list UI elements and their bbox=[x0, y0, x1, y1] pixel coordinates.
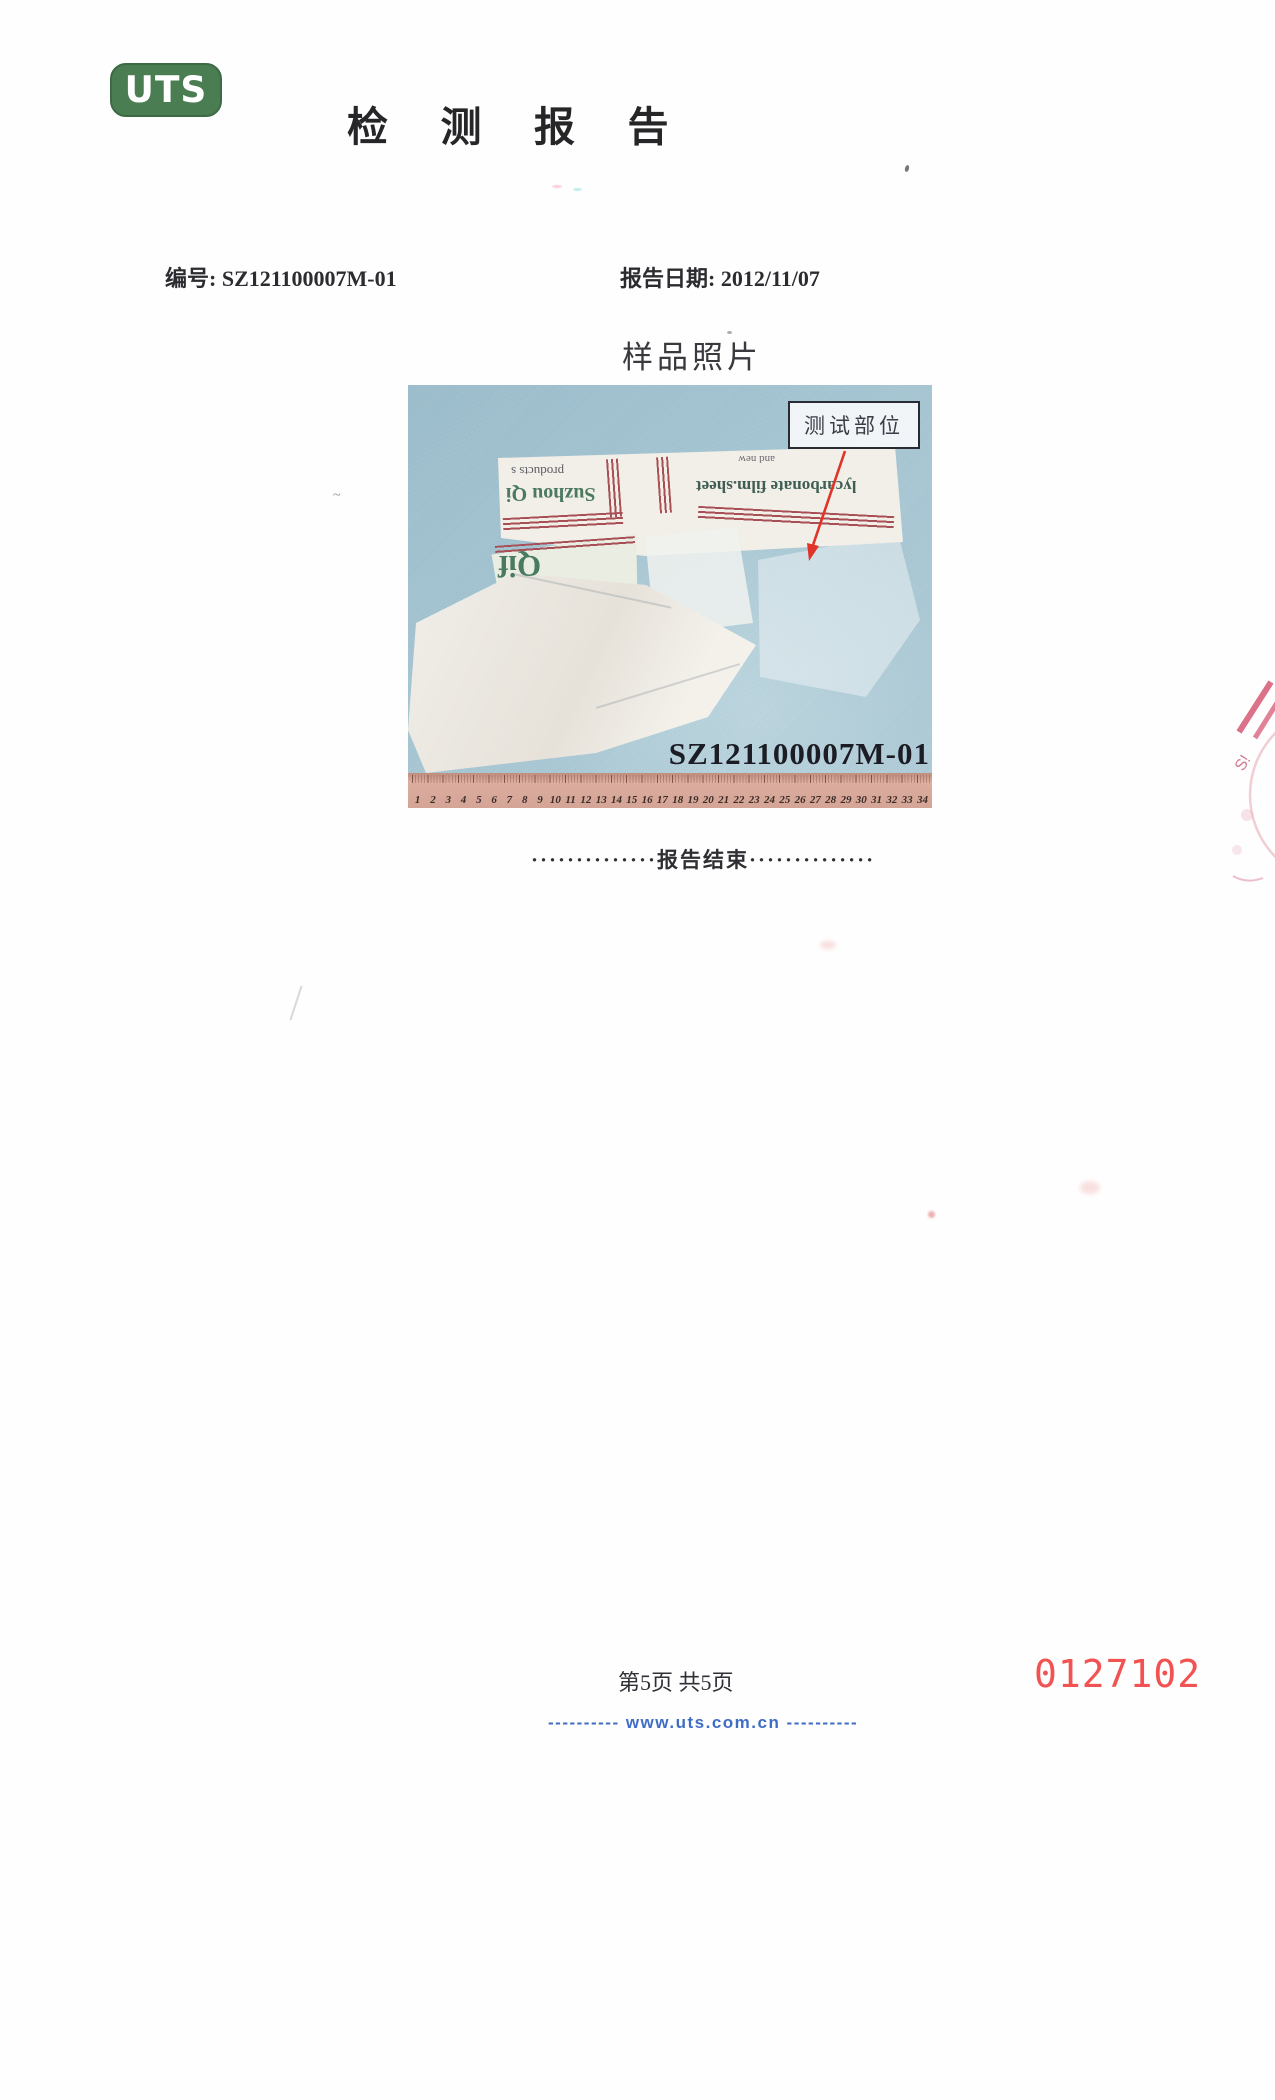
ruler-number: 24 bbox=[762, 794, 777, 806]
scan-scratch bbox=[289, 986, 302, 1021]
report-date-line: 报告日期: 2012/11/07 bbox=[620, 261, 820, 293]
ruler-number: 28 bbox=[823, 794, 838, 806]
ruler-number: 11 bbox=[563, 794, 578, 806]
report-number-label: 编号: bbox=[165, 266, 216, 291]
ruler-number: 17 bbox=[655, 794, 670, 806]
ruler-number: 31 bbox=[869, 794, 884, 806]
ruler-number: 8 bbox=[517, 794, 532, 806]
uts-logo-text: UTS bbox=[125, 69, 208, 111]
scan-mark: ~ bbox=[333, 488, 341, 504]
ruler-number: 29 bbox=[838, 794, 853, 806]
ruler-number: 18 bbox=[670, 794, 685, 806]
sample-id-text: SZ121100007M-01 bbox=[669, 736, 930, 772]
test-location-label: 测试部位 bbox=[804, 410, 904, 440]
report-date-label: 报告日期: bbox=[620, 266, 715, 291]
report-page: UTS 检测报告 编号: SZ121100007M-01 报告日期: 2012/… bbox=[0, 0, 1275, 2100]
ruler-number: 23 bbox=[747, 794, 762, 806]
ruler-number: 12 bbox=[578, 794, 593, 806]
ruler-number: 5 bbox=[471, 794, 486, 806]
ruler-number: 27 bbox=[808, 794, 823, 806]
website-line: ---------- www.uts.com.cn ---------- bbox=[548, 1713, 858, 1733]
stamp-serial-number: 0127102 bbox=[1034, 1652, 1201, 1696]
report-end-marker: ··············报告结束·············· bbox=[531, 844, 875, 874]
report-number-line: 编号: SZ121100007M-01 bbox=[165, 261, 397, 293]
ruler-number: 21 bbox=[716, 794, 731, 806]
ink-smudge bbox=[573, 188, 582, 191]
ruler-number: 6 bbox=[486, 794, 501, 806]
ruler-number: 13 bbox=[594, 794, 609, 806]
ink-smudge bbox=[820, 941, 836, 949]
ruler-numbers: 1234567891011121314151617181920212223242… bbox=[410, 794, 930, 806]
ink-smudge bbox=[552, 185, 562, 188]
ruler-number: 1 bbox=[410, 794, 425, 806]
ruler-number: 9 bbox=[532, 794, 547, 806]
ruler-number: 14 bbox=[609, 794, 624, 806]
ruler-number: 10 bbox=[548, 794, 563, 806]
ruler-ticks bbox=[412, 775, 932, 783]
ink-smudge bbox=[928, 1211, 935, 1218]
ruler-number: 4 bbox=[456, 794, 471, 806]
ruler-number: 16 bbox=[639, 794, 654, 806]
ruler-number: 30 bbox=[854, 794, 869, 806]
ink-smudge bbox=[1080, 1181, 1100, 1194]
scan-speck bbox=[904, 165, 910, 173]
ruler-number: 25 bbox=[777, 794, 792, 806]
uts-logo: UTS bbox=[110, 63, 222, 117]
ruler-number: 22 bbox=[731, 794, 746, 806]
ruler-number: 3 bbox=[441, 794, 456, 806]
ruler-number: 26 bbox=[792, 794, 807, 806]
ruler-number: 20 bbox=[701, 794, 716, 806]
report-number-value: SZ121100007M-01 bbox=[222, 266, 397, 291]
sample-photo-heading: 样品照片 bbox=[622, 332, 762, 377]
stamp-fragment: S! bbox=[1213, 680, 1275, 890]
ruler-number: 15 bbox=[624, 794, 639, 806]
page-indicator: 第5页 共5页 bbox=[618, 1665, 734, 1697]
test-location-callout: 测试部位 bbox=[788, 401, 920, 449]
ruler-number: 7 bbox=[502, 794, 517, 806]
photo-ruler: 1234567891011121314151617181920212223242… bbox=[408, 773, 932, 808]
report-title: 检测报告 bbox=[347, 93, 721, 153]
sample-photo: products s Suzhou Qi and new lycarbonate… bbox=[408, 385, 932, 808]
svg-text:S!: S! bbox=[1232, 752, 1254, 774]
ruler-number: 2 bbox=[425, 794, 440, 806]
report-date-value: 2012/11/07 bbox=[721, 266, 820, 291]
ruler-number: 33 bbox=[900, 794, 915, 806]
ruler-number: 34 bbox=[915, 794, 930, 806]
scan-speck bbox=[727, 331, 732, 334]
ruler-number: 19 bbox=[685, 794, 700, 806]
ruler-number: 32 bbox=[884, 794, 899, 806]
